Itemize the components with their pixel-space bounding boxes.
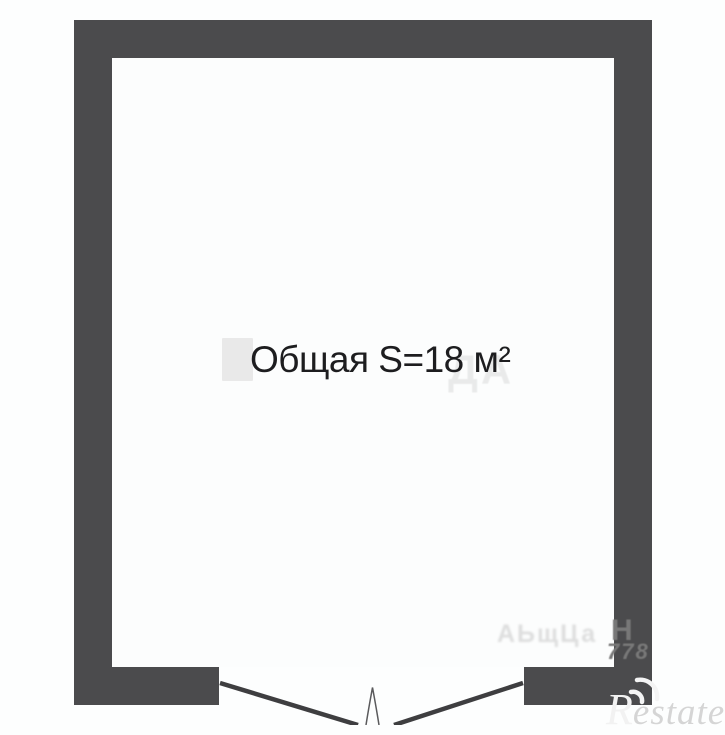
wall-left bbox=[74, 20, 112, 705]
brand-rest-letters: estate bbox=[633, 692, 725, 733]
wall-watermark-digits: 778 bbox=[607, 639, 650, 665]
floorplan-canvas: ДА АЬщЦа Н 778 Общая S=18 м² Restate bbox=[0, 0, 725, 725]
wall-bottom-left-segment bbox=[74, 667, 219, 705]
ghost-watermark-block bbox=[222, 338, 253, 381]
floorplan-screenshot: { "floorplan": { "room_label": "Общая S=… bbox=[0, 0, 725, 725]
brand-watermark: Restate bbox=[606, 684, 725, 735]
door-leaf-left-line bbox=[220, 683, 358, 725]
faint-watermark-smudge: АЬщЦа bbox=[497, 620, 597, 649]
room-area-label: Общая S=18 м² bbox=[250, 339, 510, 381]
door-leaf-right-line bbox=[394, 683, 523, 725]
door-center-arc bbox=[366, 688, 379, 726]
wall-top bbox=[74, 20, 652, 58]
wall-right bbox=[614, 20, 652, 705]
brand-first-letter: R bbox=[606, 685, 633, 734]
